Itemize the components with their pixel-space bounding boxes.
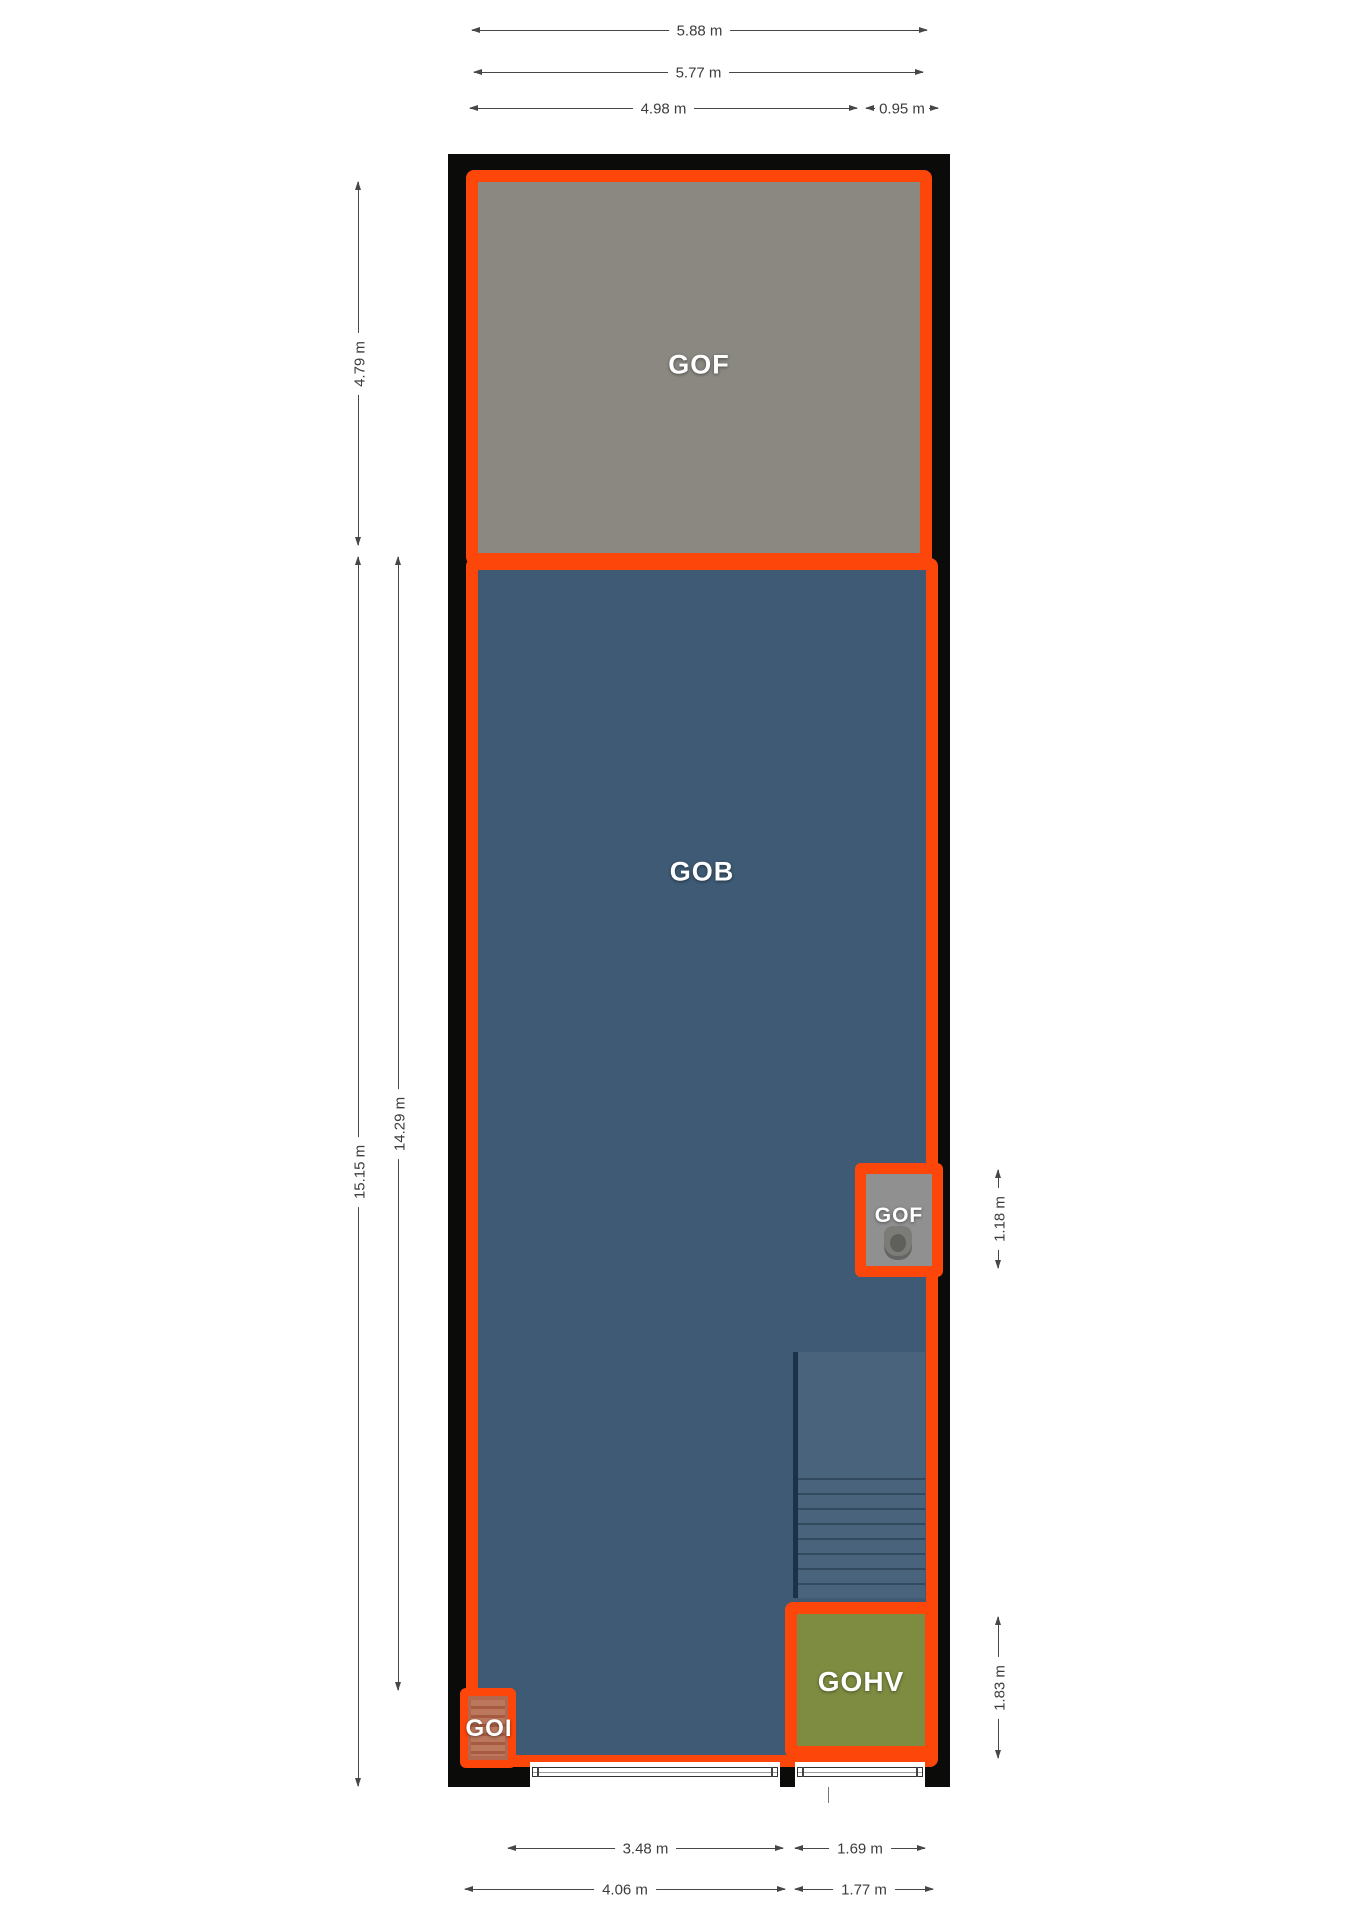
- window-opening-right: [795, 1762, 925, 1787]
- stairs: [793, 1352, 925, 1598]
- room-label-gof-top: GOF: [668, 350, 730, 381]
- window-glyph: [532, 1767, 778, 1777]
- dimension-label: 5.77 m: [668, 65, 730, 82]
- dimension-total-width: 5.88 m: [472, 30, 927, 31]
- floorplan-canvas: GOF GOB GOF GOHV GOI 5.88 m 5.77 m 4.98 …: [0, 0, 1358, 1920]
- dimension-label: 0.95 m: [875, 101, 929, 118]
- dimension-label: 4.79 m: [351, 333, 368, 395]
- dimension-bottom-left-outer: 4.06 m: [465, 1889, 785, 1890]
- dimension-label: 4.06 m: [594, 1882, 656, 1899]
- leader-line: [828, 1787, 829, 1803]
- window-glyph: [797, 1767, 923, 1777]
- dimension-label: 4.98 m: [633, 101, 695, 118]
- window-opening-left: [530, 1762, 780, 1787]
- dimension-label: 5.88 m: [669, 23, 731, 40]
- room-label-gohv: GOHV: [818, 1666, 904, 1698]
- dimension-inner-width: 5.77 m: [474, 72, 923, 73]
- dimension-gob-height: 14.29 m: [398, 557, 399, 1690]
- dimension-label: 15.15 m: [351, 1136, 368, 1206]
- room-label-gob: GOB: [670, 857, 735, 888]
- dimension-label: 1.77 m: [833, 1882, 895, 1899]
- dimension-gof-height: 4.79 m: [358, 182, 359, 545]
- dimension-bottom-left-inner: 3.48 m: [508, 1848, 783, 1849]
- dimension-bottom-right-outer: 1.77 m: [795, 1889, 933, 1890]
- stair-treads: [798, 1478, 925, 1598]
- dimension-top-left-width: 4.98 m: [470, 108, 857, 109]
- dimension-gohv-height: 1.83 m: [998, 1617, 999, 1758]
- room-label-gof-toilet: GOF: [875, 1204, 924, 1228]
- dimension-label: 1.83 m: [991, 1657, 1008, 1719]
- dimension-toilet-height: 1.18 m: [998, 1170, 999, 1268]
- dimension-label: 3.48 m: [615, 1841, 677, 1858]
- dimension-bottom-right-inner: 1.69 m: [795, 1848, 925, 1849]
- dimension-label: 1.69 m: [829, 1841, 891, 1858]
- room-label-goi: GOI: [465, 1715, 512, 1743]
- dimension-label: 14.29 m: [391, 1088, 408, 1158]
- dimension-top-right-width: 0.95 m: [866, 108, 938, 109]
- dimension-lower-outer-height: 15.15 m: [358, 557, 359, 1786]
- dimension-label: 1.18 m: [991, 1188, 1008, 1250]
- toilet-icon: [884, 1226, 912, 1260]
